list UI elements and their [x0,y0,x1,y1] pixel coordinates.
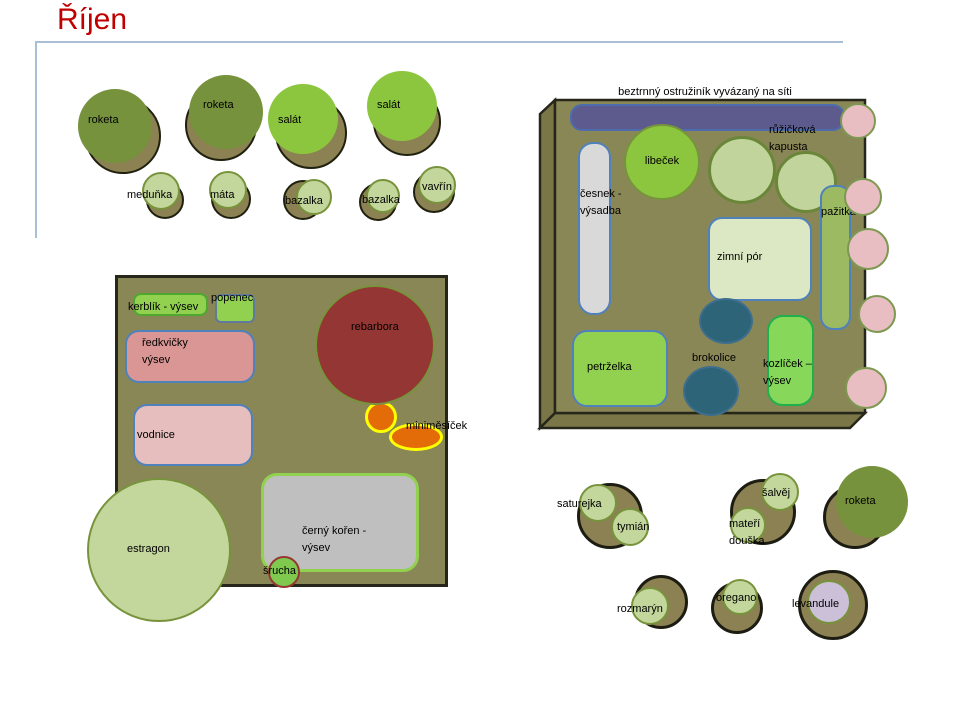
plant-saturejka-label: saturejka [557,496,602,513]
plant-petrzelka-label: petrželka [587,359,632,376]
page-title: Říjen [57,3,127,37]
bed-left-side [540,100,555,428]
edge-flower-1 [840,103,876,139]
plant-medunka-label: meduňka [127,187,172,204]
plant-brokolice-1 [699,298,753,344]
plant-oregano-label: oregano [716,590,756,607]
plant-salvej-label: šalvěj [762,485,790,502]
slide-canvas: Říjen roketa roketa salát salát meduňka … [0,0,960,720]
plant-roketa-3-label: roketa [845,493,876,510]
edge-flower-4 [858,295,896,333]
plant-vodnice-label: vodnice [137,427,175,444]
plant-kozlicek-label: kozlíček – výsev [763,356,812,390]
edge-flower-5 [845,367,887,409]
blackberry-note: beztrnný ostružiník vyvázaný na síti [545,84,865,101]
plant-srucha-label: šrucha [263,563,296,580]
plant-brokolice-2 [683,366,739,416]
plant-kapusta-1 [708,136,776,204]
plant-mata-label: máta [210,187,234,204]
plant-minimesicek-label: miniměsíček [406,418,467,435]
plant-cesnek-label: česnek - výsadba [580,186,622,220]
plant-minimesicek-circle [365,401,397,433]
plant-roketa-1-label: roketa [88,112,119,129]
plant-vavrin-label: vavřín [422,179,452,196]
plant-salat-2-label: salát [377,97,400,114]
plant-redkvicky-label: ředkvičky výsev [142,335,188,369]
plant-levandule-label: levandule [792,596,839,613]
bed-bottom-side [540,413,865,428]
plant-salat-1-label: salát [278,112,301,129]
divider-vertical [35,41,37,238]
plant-popenec-label: popenec [211,290,253,307]
edge-flower-3 [847,228,889,270]
plant-materi-douska-label: mateří douška [729,516,764,550]
plant-bazalka-1-label: bazalka [285,193,323,210]
plant-zimni-por-label: zimní pór [717,249,762,266]
plant-brokolice-label: brokolice [692,350,736,367]
plant-cerny-koren-label: černý kořen - výsev [302,523,366,557]
plant-estragon-label: estragon [127,541,170,558]
plant-tymian-label: tymián [617,519,649,536]
plant-bazalka-2-label: bazalka [362,192,400,209]
plant-kapusta-label: růžičková kapusta [769,122,815,156]
plant-rebarbora-label: rebarbora [351,319,399,336]
edge-flower-2 [844,178,882,216]
plant-kerblik-label: kerblík - výsev [128,299,198,316]
plant-roketa-2-label: roketa [203,97,234,114]
plant-cesnek-area [578,142,611,315]
plant-rebarbora [315,285,435,405]
plant-libecek-label: libeček [624,153,700,170]
plant-rozmaryn-label: rozmarýn [617,601,663,618]
divider-horizontal [35,41,843,43]
